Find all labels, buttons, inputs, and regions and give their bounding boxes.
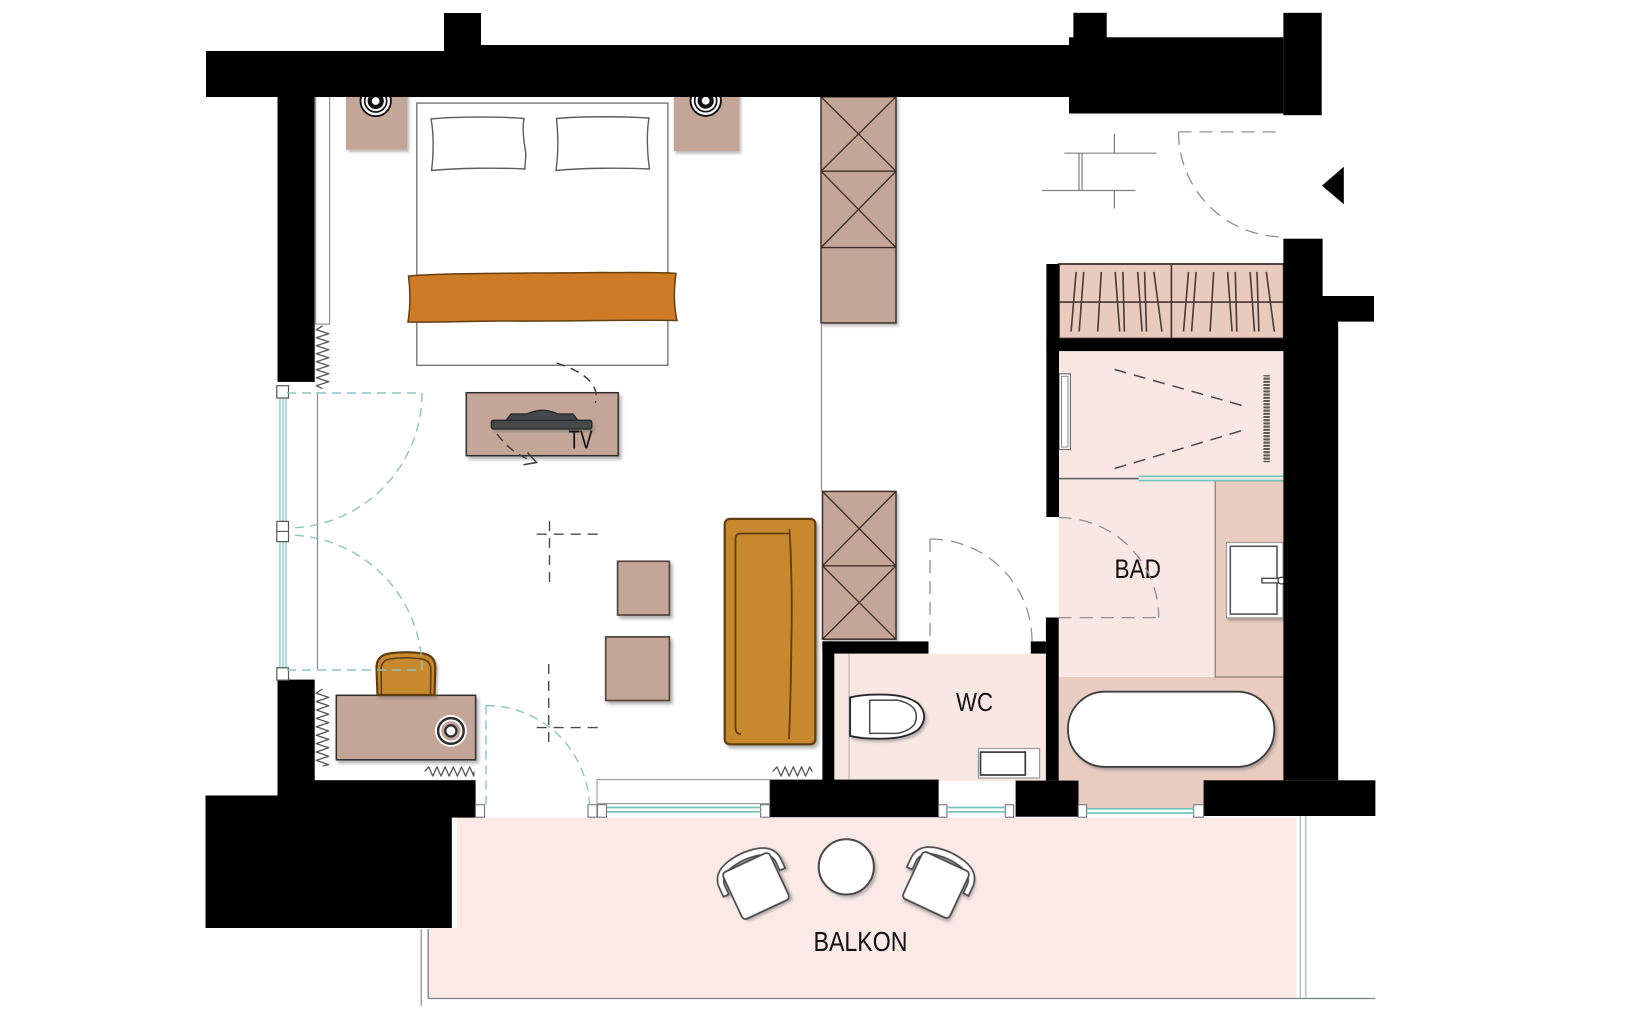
svg-text:TV: TV: [569, 426, 593, 454]
svg-text:BAD: BAD: [1115, 554, 1162, 584]
svg-text:BALKON: BALKON: [814, 926, 908, 957]
svg-text:WC: WC: [956, 689, 993, 717]
